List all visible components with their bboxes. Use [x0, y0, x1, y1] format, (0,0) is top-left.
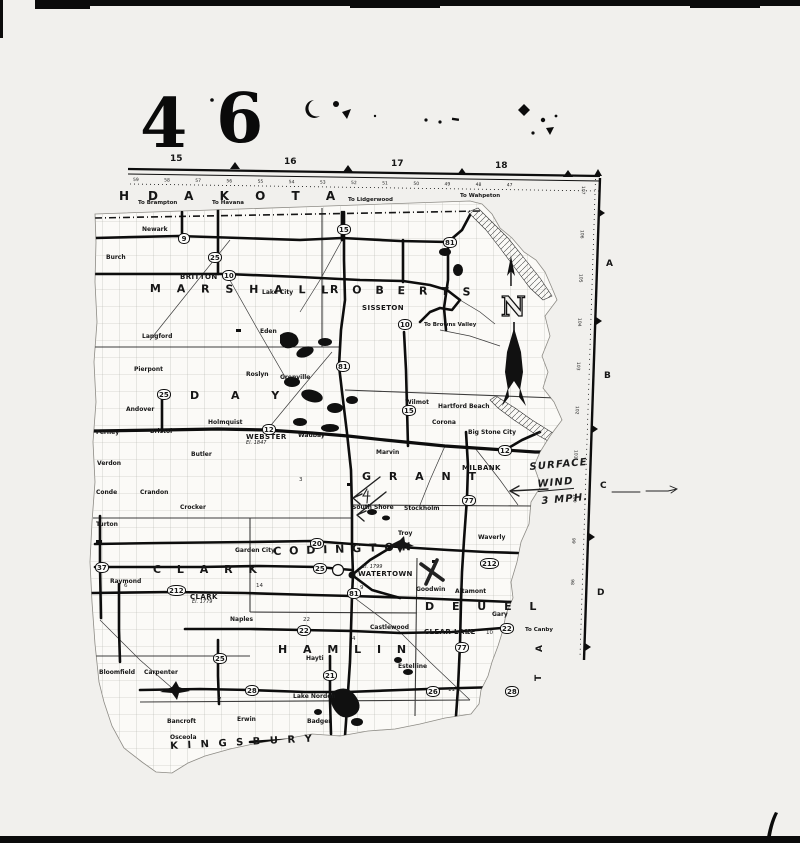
town-label: Goodwin [416, 587, 445, 593]
highway-shield: 22 [297, 625, 311, 636]
town-label: Pierpont [134, 367, 163, 373]
highway-shield: 77 [462, 495, 476, 506]
lake-kampeska-ring [333, 565, 344, 576]
page-number: 4 [140, 90, 187, 158]
county-label: R O B E R T S [330, 284, 476, 298]
section-number: 10 [486, 631, 493, 637]
section-number: 6 [124, 584, 128, 590]
town-label: Bristol [150, 429, 172, 435]
town-label: Crandon [140, 490, 168, 496]
town-label: Garden City [235, 548, 275, 554]
state-border-letter: A [536, 645, 545, 652]
town-label: Langford [142, 334, 172, 340]
state-label: D A K O T A [148, 190, 346, 202]
town-label: Castlewood [370, 625, 409, 631]
town-label: Hartford Beach [438, 404, 490, 410]
town-label: Osceola [170, 735, 197, 741]
grid-row-letter: C [600, 482, 607, 491]
highway-shield: 25 [157, 389, 171, 400]
destination-label: To Havana [212, 201, 244, 207]
county-label: D A Y [190, 390, 293, 401]
highway-shield: 28 [505, 686, 519, 697]
section-number: 22 [303, 618, 310, 624]
highway-shield: 9 [178, 233, 190, 244]
destination-label: To Canby [525, 628, 553, 634]
highway-shield: 25 [208, 252, 222, 263]
town-label: Waubay [298, 433, 325, 439]
town-label: Erwin [237, 717, 256, 723]
town-label: Naples [230, 617, 253, 623]
town-label: Burch [106, 255, 126, 261]
highway-shield: 81 [443, 237, 457, 248]
town-label: Big Stone City [468, 430, 516, 436]
town-label: Eden [260, 329, 277, 335]
highway-shield: 21 [323, 670, 337, 681]
elevation-note: El. 1847 [246, 441, 266, 446]
highway-shield: 10 [222, 270, 236, 281]
destination-label: To Brampton [138, 201, 177, 207]
town-label: Verdon [97, 461, 121, 467]
town-label: Bancroft [167, 719, 196, 725]
section-number: 11 [448, 688, 455, 694]
highway-shield: 12 [498, 445, 512, 456]
town-label: Lake City [262, 290, 293, 296]
town-label: Troy [398, 531, 412, 537]
town-label: Butler [191, 452, 212, 458]
destination-label: To Lidgerwood [348, 198, 393, 204]
town-label: Grenville [280, 375, 310, 381]
highway-shield: 26 [426, 686, 440, 697]
town-label: Holmquist [208, 420, 243, 426]
highway-shield: 15 [402, 405, 416, 416]
map-svg: N [0, 0, 800, 843]
highway-shield: 37 [95, 562, 109, 573]
destination-label: To Wahpeton [460, 194, 500, 200]
grid-column-number: 18 [495, 162, 508, 171]
highway-shield: 81 [336, 361, 350, 372]
elevation-note: El. 1799 [362, 565, 382, 570]
state-label: H [119, 190, 129, 202]
town-label: Marvin [376, 450, 399, 456]
town-label: Ferney [96, 430, 119, 436]
town-label: BRITTON [180, 274, 218, 281]
destination-label: To Browns Valley [424, 323, 476, 329]
town-label: Crocker [180, 505, 206, 511]
town-label: Turton [96, 522, 118, 528]
town-label: MILBANK [462, 465, 501, 472]
section-number: 14 [466, 631, 473, 637]
town-label: WATERTOWN [358, 571, 413, 578]
highway-shield: 22 [500, 623, 514, 634]
section-number: 9 [360, 586, 364, 592]
highway-shield: 20 [310, 538, 324, 549]
highway-shield: 77 [455, 642, 469, 653]
section-number: 3 [299, 478, 303, 484]
town-label: South Shore [352, 505, 394, 511]
page-number: 6 [216, 85, 263, 153]
grid-column-number: 16 [284, 158, 297, 167]
section-number: 14 [256, 584, 263, 590]
county-label: G R A N T [362, 471, 483, 482]
town-label: Lake Norden [293, 694, 336, 700]
town-label: Stockholm [404, 506, 440, 512]
grid-column-number: 15 [170, 155, 183, 164]
town-label: Gary [492, 612, 508, 618]
scanned-map-page: N 46 HD A K O T A M A R S H A L LR O B E… [0, 0, 800, 843]
town-label: SISSETON [362, 305, 404, 312]
section-number: 7 [218, 698, 222, 704]
town-label: Badger [307, 719, 331, 725]
town-label: Hayti [306, 656, 324, 662]
highway-shield: 25 [313, 563, 327, 574]
bottom-margin-bar [0, 836, 800, 843]
highway-shield: 81 [347, 588, 361, 599]
compass-n-letter: N [501, 292, 526, 323]
town-label: Waverly [478, 535, 505, 541]
grid-column-number: 17 [391, 160, 404, 169]
town-label: Newark [142, 227, 168, 233]
town-label: Corona [432, 420, 456, 426]
grid-row-letter: A [606, 260, 613, 269]
town-label: Roslyn [246, 372, 269, 378]
grid-row-letter: D [597, 589, 604, 598]
county-label: M A R S H A L L [150, 283, 334, 296]
highway-shield: 212 [167, 585, 186, 596]
county-label: D E U E L [425, 601, 543, 612]
highway-shield: 10 [398, 319, 412, 330]
county-label: H A M L I N [278, 644, 412, 655]
section-number: 4 [352, 637, 356, 643]
county-label: C L A R K [153, 564, 263, 575]
town-label: Altamont [455, 589, 486, 595]
state-border-letter: T [535, 675, 544, 681]
elevation-note: El. 1779 [192, 600, 212, 605]
highway-shield: 15 [337, 224, 351, 235]
town-label: Estelline [398, 664, 427, 670]
town-label: Conde [96, 490, 117, 496]
highway-shield: 212 [480, 558, 499, 569]
highway-shield: 28 [245, 685, 259, 696]
town-label: Carpenter [144, 670, 178, 676]
highway-shield: 12 [262, 424, 276, 435]
town-label: Andover [126, 407, 154, 413]
highway-shield: 25 [213, 653, 227, 664]
town-label: Bloomfield [99, 670, 135, 676]
grid-row-letter: B [604, 372, 611, 381]
